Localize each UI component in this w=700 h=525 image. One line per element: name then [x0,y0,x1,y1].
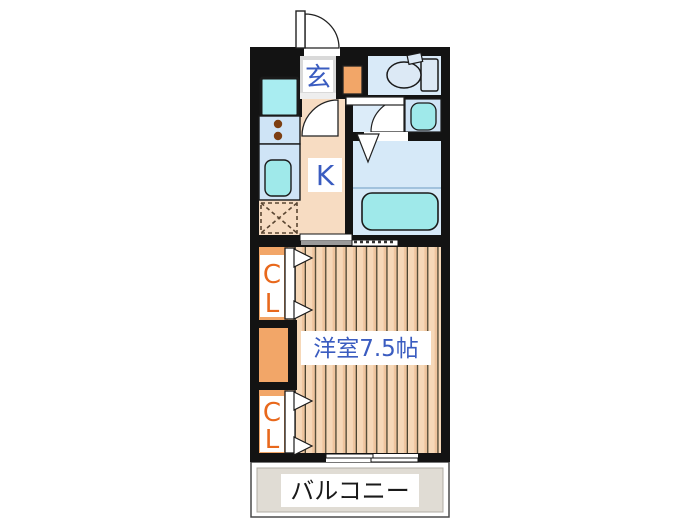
toilet-tank [421,59,438,91]
floorplan-svg: バルコニー 玄 K [0,0,700,525]
toilet-room [368,53,441,95]
genkan-step [300,93,338,99]
closet-middle-block [259,328,288,382]
genkan-label: 玄 [305,63,331,93]
balcony-label: バルコニー [290,477,410,505]
closet-upper-label-l: L [265,289,280,319]
kitchen-label: K [316,159,335,192]
washroom-door-leaf [346,97,404,105]
washbasin [411,103,436,130]
window-panel [371,458,418,462]
kitchen-sink [265,160,291,196]
bathtub [362,193,438,230]
closet-lower-label-l: L [265,425,280,455]
main-room: 洋室7.5帖 [288,247,441,453]
room-label: 洋室7.5帖 [313,336,419,362]
closet-divider-wall [259,382,297,390]
shoe-cabinet [343,66,362,94]
bathroom [353,132,441,235]
sliding-door-shadow [301,241,352,245]
closet-lower-label-c: C [263,398,281,428]
closet-upper-label-c: C [263,260,281,290]
sliding-window [326,454,418,462]
entrance-door-leaf [296,11,305,48]
toilet-bowl-icon [387,62,421,88]
closet-side-wall [288,320,297,390]
washroom [346,97,441,132]
stove-burner-icon [274,120,282,128]
washing-machine-pan [261,78,298,116]
sliding-door-panel [300,234,352,241]
balcony: バルコニー [251,462,449,517]
stove-burner-icon [274,132,282,140]
floorplan-image: バルコニー 玄 K [0,0,700,525]
window-panel [326,454,373,458]
